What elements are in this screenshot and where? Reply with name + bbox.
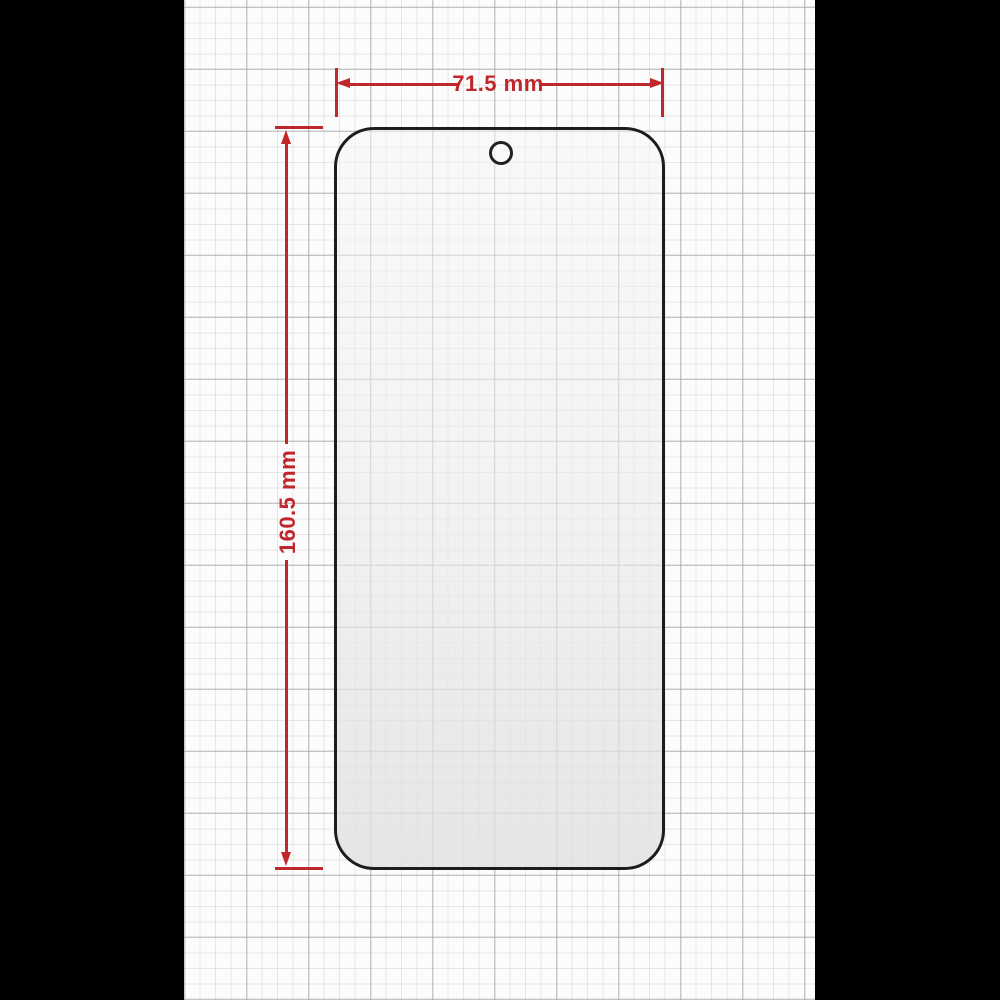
width-dimension-line-right [540, 83, 650, 86]
arrow-left-icon [336, 78, 350, 88]
camera-hole-icon [489, 141, 513, 165]
height-extension-line-bottom [275, 867, 323, 870]
arrow-right-icon [650, 78, 664, 88]
width-extension-line-right [661, 68, 664, 117]
width-extension-line-left [335, 68, 338, 117]
screen-protector-outline [334, 127, 665, 870]
height-dimension-line-bottom [285, 560, 288, 853]
height-dimension-line-top [285, 143, 288, 444]
arrow-up-icon [281, 130, 291, 144]
height-dimension-label: 160.5 mm [275, 450, 301, 554]
width-dimension-label: 71.5 mm [452, 71, 544, 97]
arrow-down-icon [281, 852, 291, 866]
page: { "diagram": { "subject": "screen-protec… [0, 0, 1000, 1000]
height-extension-line-top [275, 126, 323, 129]
width-dimension-line-left [350, 83, 458, 86]
graph-paper: 71.5 mm 160.5 mm [184, 0, 815, 1000]
